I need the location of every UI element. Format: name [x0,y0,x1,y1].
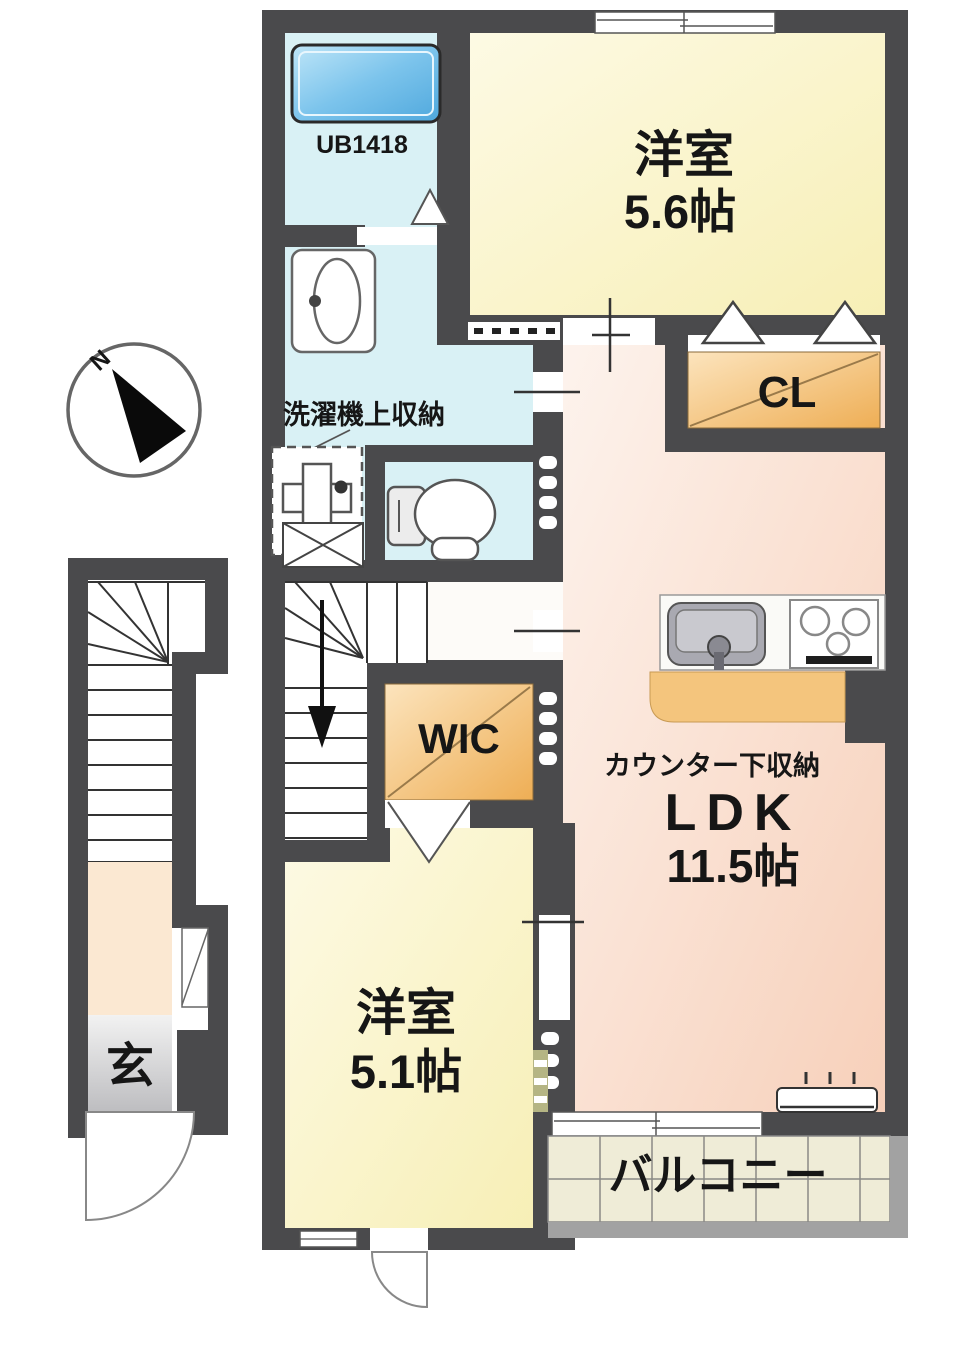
entrance-door-arc [86,1112,194,1220]
counter-storage [650,672,845,722]
balcony-label: バルコニー [608,1151,827,1200]
floor-plan-drawing: CL UB1418 洗濯機上収納 [0,0,960,1348]
bathtub-icon [292,45,440,122]
ldk-size-label: 11.5帖 [667,840,800,892]
washroom-label: 洗濯機上収納 [283,399,445,430]
counter-storage-label: カウンター下収納 [604,750,820,781]
kitchen-sink-icon [668,603,765,670]
shoe-cabinet [182,928,208,1007]
window-balcony [552,1112,762,1136]
ldk-label: LDK [665,784,802,842]
ldk-room [563,345,885,1112]
exterior-stair-block: 玄 [68,558,228,1220]
balcony-partition-hatch [533,1050,548,1112]
entrance-label: 玄 [106,1040,154,1093]
stove-icon [790,600,878,668]
bedroom-bottom-label: 洋室 [356,985,456,1041]
bedroom-bottom-size: 5.1帖 [350,1045,462,1098]
bedroom-top-size: 5.6帖 [624,185,736,238]
wic-label: WIC [418,715,500,762]
entrance-landing [88,862,172,1015]
closet-label: CL [758,368,817,417]
floor-plan-canvas: CL UB1418 洗濯機上収納 [0,0,960,1348]
vanity-sink-icon [292,250,375,352]
window-top [595,12,775,33]
bedroom-bottom-exit-door [370,1228,428,1307]
pipe-space-icon [283,523,363,567]
unit-bath-label: UB1418 [316,131,408,159]
window-bottom [300,1231,357,1247]
compass-icon: N [68,344,200,476]
bedroom-top-label: 洋室 [634,127,734,183]
